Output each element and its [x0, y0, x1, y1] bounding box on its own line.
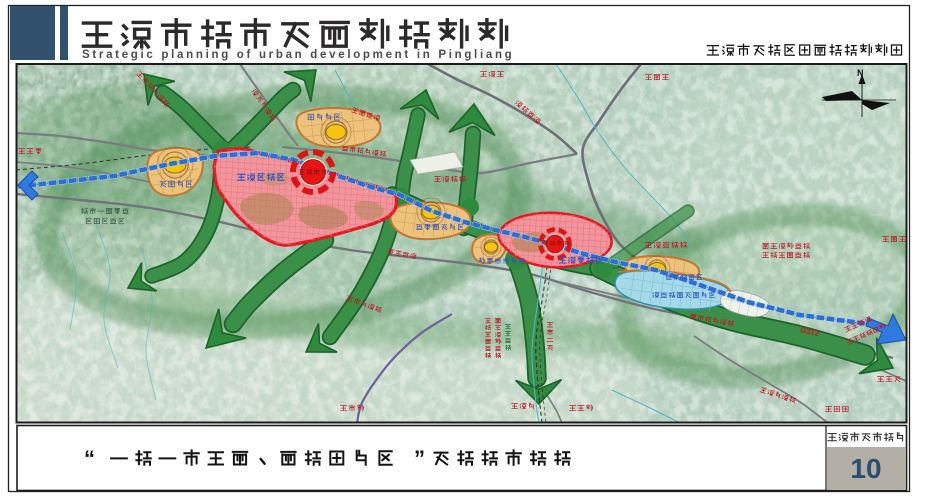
svg-text:”: ” — [414, 446, 425, 471]
svg-text:“: “ — [84, 446, 95, 471]
svg-text:10: 10 — [850, 453, 881, 484]
svg-text:Strategic planning of urban de: Strategic planning of urban development … — [82, 49, 514, 61]
